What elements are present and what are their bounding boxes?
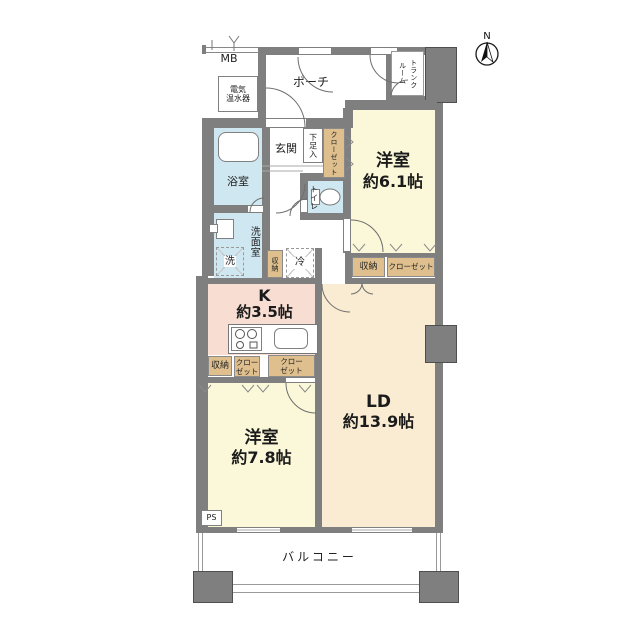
compass-circle bbox=[476, 43, 498, 65]
compass-needle-light bbox=[487, 42, 493, 62]
floor-plan: 洗 冷 MB 電気 温水器 ポーチ トランク ルーム 玄関 下足入 クローゼット… bbox=[0, 0, 640, 640]
wall-washroom-bottom bbox=[202, 278, 322, 284]
wall-porch-left bbox=[258, 47, 266, 128]
room-living-dining bbox=[322, 284, 435, 527]
wall-bedroom2-ld-divider bbox=[315, 383, 322, 527]
pillar-mid-right bbox=[425, 325, 457, 363]
window-living bbox=[352, 528, 412, 532]
washbasin bbox=[216, 219, 234, 239]
pipe-space-box bbox=[201, 510, 222, 526]
entrance-label: 玄関 bbox=[268, 142, 304, 157]
wall-left-lower bbox=[196, 276, 208, 533]
door-arc-porch-gate1 bbox=[298, 57, 333, 92]
door-gap-toilet bbox=[301, 200, 307, 212]
compass: N bbox=[476, 31, 498, 65]
wall-kitchen-right bbox=[315, 248, 322, 383]
room-bedroom2 bbox=[208, 383, 315, 527]
mb-label: MB bbox=[214, 52, 244, 66]
stove bbox=[231, 327, 262, 351]
sink bbox=[274, 328, 308, 349]
door-gap-bedroom1 bbox=[344, 219, 350, 251]
compass-north-label: N bbox=[483, 31, 490, 42]
hall-storage-box bbox=[267, 250, 283, 278]
kitchen-storage-box bbox=[208, 356, 232, 376]
entry-closet-box bbox=[323, 128, 345, 178]
washer-label: 洗 bbox=[224, 256, 236, 268]
kitchen-closet1-box bbox=[234, 356, 260, 377]
wall-storage-left bbox=[345, 255, 352, 284]
bedroom1-closet-box bbox=[387, 257, 435, 277]
thin-wall-mb bbox=[206, 47, 258, 53]
balcony-rail-bottom bbox=[198, 584, 441, 593]
thin-wall-cap bbox=[202, 45, 206, 54]
balcony-label: バルコニー bbox=[198, 550, 441, 566]
trunk-room-box bbox=[391, 51, 424, 96]
pillar-balcony-right bbox=[419, 571, 459, 603]
wall-left-upper bbox=[202, 118, 214, 276]
washer-space: 洗 bbox=[216, 247, 244, 276]
compass-needle-dark bbox=[481, 42, 487, 62]
pillar-balcony-left bbox=[193, 571, 233, 603]
door-gap-entrance bbox=[266, 119, 306, 127]
room-bedroom1 bbox=[351, 110, 435, 253]
pillar-top-right bbox=[425, 47, 457, 103]
refrigerator-space: 冷 bbox=[286, 248, 314, 278]
door-gap-bedroom2 bbox=[286, 378, 315, 382]
refrigerator-label: 冷 bbox=[294, 257, 306, 269]
window-bedroom2 bbox=[237, 528, 280, 532]
washbasin-handle bbox=[209, 224, 218, 233]
toilet-tank bbox=[311, 189, 320, 205]
wall-trunk-bottom bbox=[386, 96, 425, 102]
door-gap-porch-gate1 bbox=[299, 48, 331, 54]
wall-right bbox=[435, 103, 443, 527]
porch-label: ポーチ bbox=[266, 75, 356, 90]
shoe-cabinet-box bbox=[303, 128, 323, 163]
wall-closet-band-bottom bbox=[345, 278, 437, 284]
kitchen-closet2-box bbox=[268, 355, 315, 377]
bedroom1-storage-box bbox=[352, 257, 385, 277]
bathtub bbox=[218, 132, 259, 162]
water-heater-box bbox=[218, 76, 258, 112]
door-gap-bathroom bbox=[248, 206, 263, 212]
